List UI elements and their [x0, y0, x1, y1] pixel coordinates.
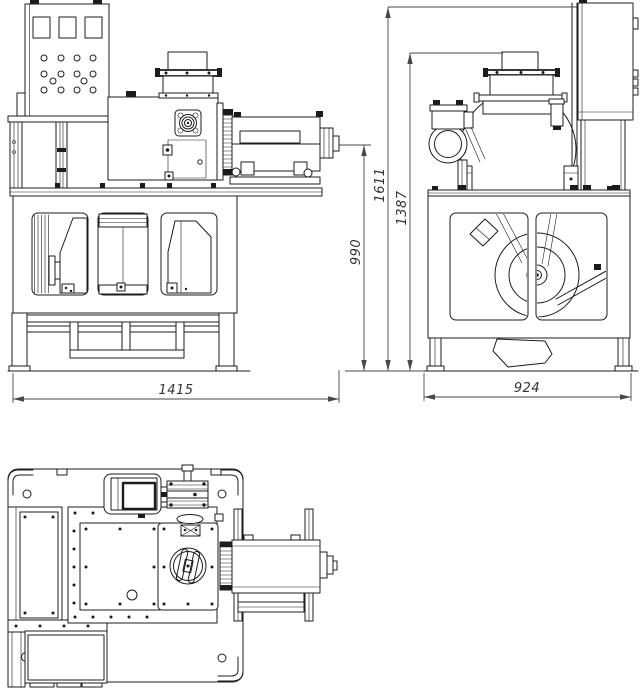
dim-front-width-value: 1415 — [158, 383, 193, 398]
front-deck — [10, 183, 322, 196]
front-base-frame — [9, 313, 237, 371]
dim-total-height-value: 1611 — [373, 167, 388, 202]
dimension-shaft-height: 990 — [339, 145, 371, 371]
front-control-cabinet — [17, 0, 117, 116]
front-hopper — [155, 52, 222, 98]
front-gearbox — [108, 91, 218, 180]
dim-side-width-value: 924 — [514, 381, 540, 396]
side-view — [415, 0, 638, 371]
plan-control-cabinet — [8, 631, 107, 687]
side-discharge-chute — [493, 339, 552, 367]
plan-gearbox — [80, 523, 160, 610]
plan-left-panel — [8, 507, 62, 623]
front-coupling — [217, 103, 233, 180]
side-control-cabinet — [578, 0, 638, 190]
drawing-canvas: 1415 990 1611 1387 — [0, 0, 640, 694]
dim-shaft-height-value: 990 — [349, 239, 364, 265]
front-base-cabinet — [9, 196, 237, 371]
side-feed-motor — [429, 100, 485, 190]
dimension-side-width: 924 — [424, 373, 631, 401]
front-drive-motor — [230, 111, 339, 184]
front-cabinet-stand — [8, 116, 110, 188]
side-base-cabinet — [427, 196, 632, 371]
side-hopper — [474, 52, 567, 130]
front-output-flange — [175, 110, 201, 136]
dim-hopper-height-value: 1387 — [395, 190, 410, 225]
three-view-machine-drawing: 1415 990 1611 1387 — [0, 0, 640, 694]
dimension-front-width: 1415 — [13, 370, 339, 403]
front-view — [8, 0, 339, 371]
plan-top-motor — [104, 474, 161, 518]
plan-view — [8, 465, 337, 687]
